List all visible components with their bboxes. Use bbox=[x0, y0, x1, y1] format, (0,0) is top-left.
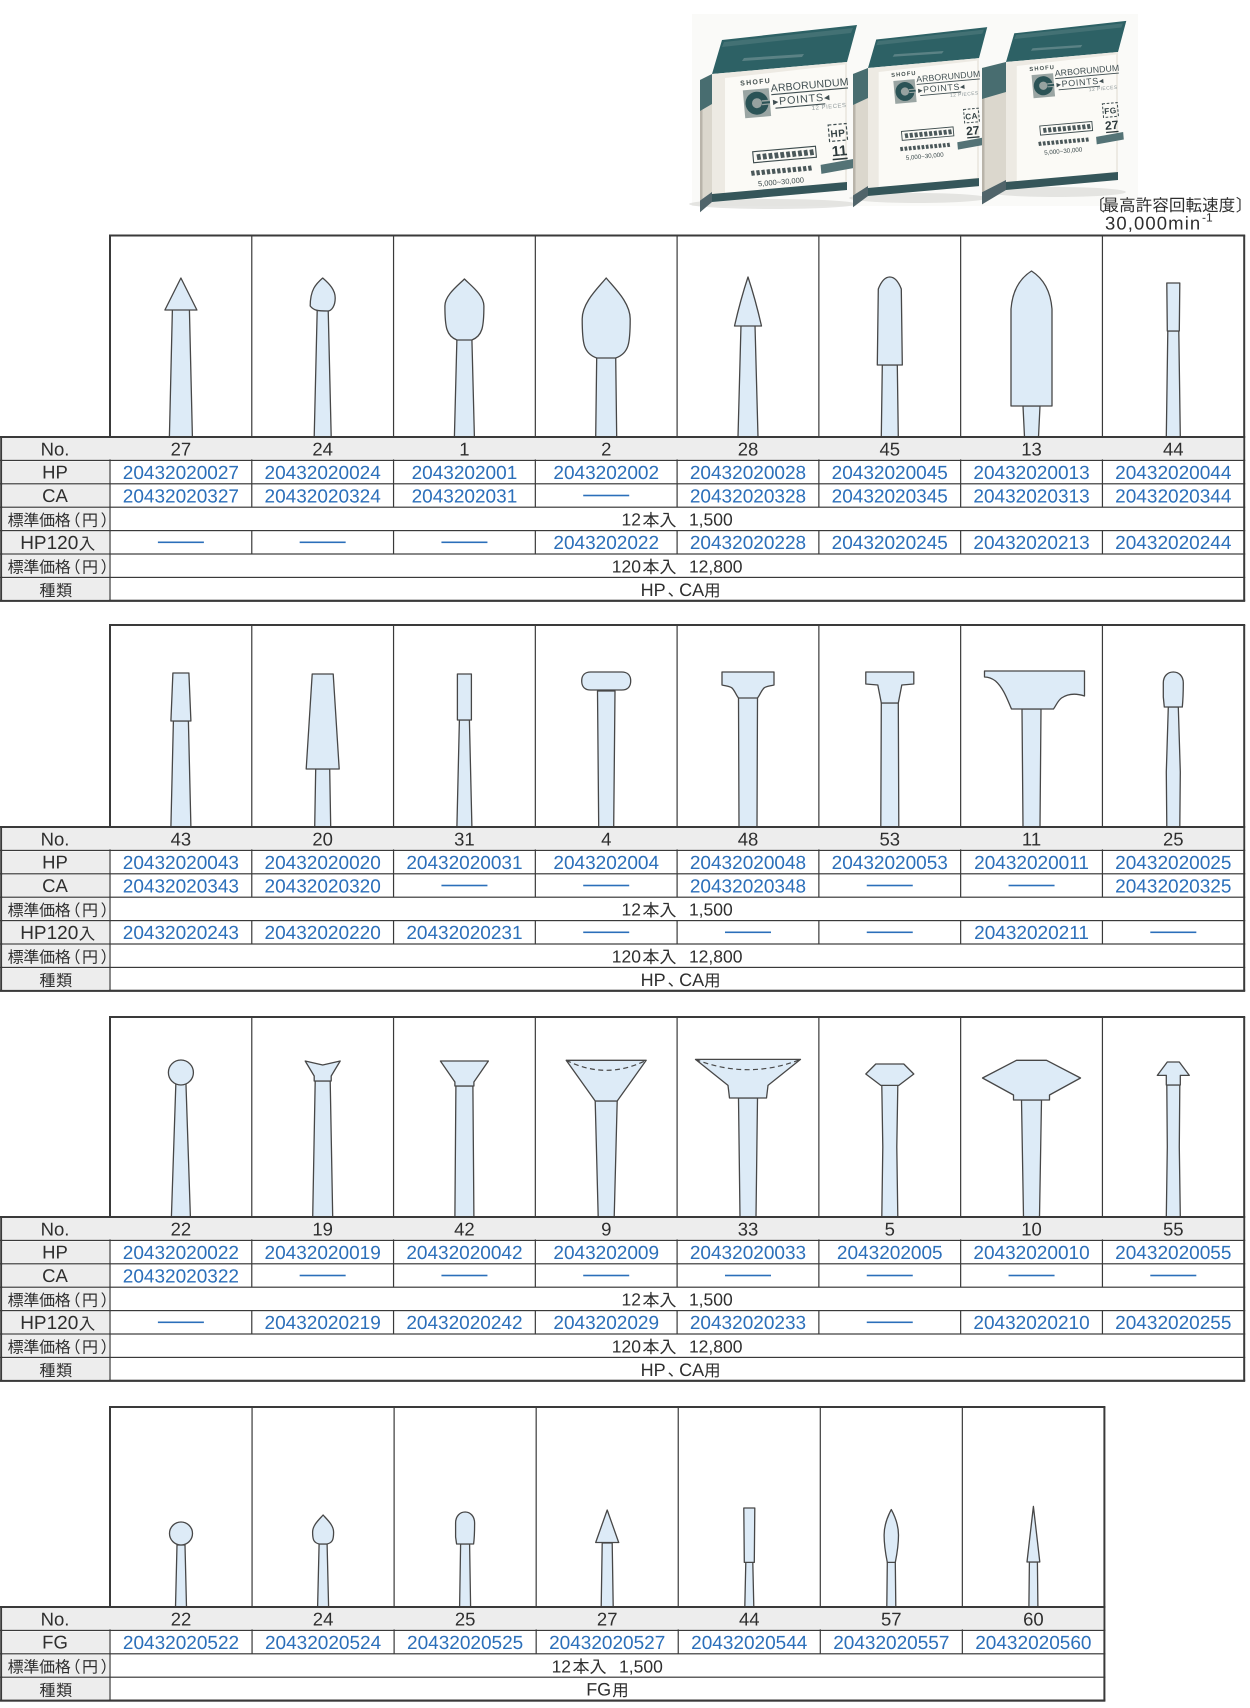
svg-text:20432020053: 20432020053 bbox=[832, 853, 948, 874]
svg-text:27: 27 bbox=[597, 1608, 618, 1629]
svg-text:CA: CA bbox=[679, 580, 704, 600]
svg-text:20432020028: 20432020028 bbox=[690, 463, 806, 484]
svg-text:48: 48 bbox=[738, 828, 759, 849]
svg-text:20432020313: 20432020313 bbox=[973, 486, 1089, 507]
svg-text:HP: HP bbox=[42, 462, 68, 483]
svg-text:22: 22 bbox=[171, 1218, 192, 1239]
svg-text:20432020527: 20432020527 bbox=[549, 1633, 665, 1654]
svg-text:CA: CA bbox=[42, 1265, 68, 1286]
svg-text:20432020522: 20432020522 bbox=[123, 1633, 239, 1654]
svg-text:42: 42 bbox=[454, 1218, 475, 1239]
svg-text:20432020010: 20432020010 bbox=[973, 1243, 1089, 1264]
svg-text:19: 19 bbox=[312, 1218, 333, 1239]
svg-text:30,000min: 30,000min bbox=[1105, 213, 1201, 234]
svg-text:20432020019: 20432020019 bbox=[265, 1243, 381, 1264]
svg-text:5: 5 bbox=[885, 1218, 895, 1239]
svg-text:No.: No. bbox=[41, 1218, 70, 1239]
svg-text:20432020348: 20432020348 bbox=[690, 876, 806, 897]
svg-text:120: 120 bbox=[612, 947, 641, 967]
svg-text:20432020255: 20432020255 bbox=[1115, 1313, 1231, 1334]
svg-text:20432020245: 20432020245 bbox=[832, 533, 948, 554]
svg-text:20432020345: 20432020345 bbox=[832, 486, 948, 507]
svg-text:FG: FG bbox=[1104, 106, 1117, 116]
svg-text:HP: HP bbox=[42, 852, 68, 873]
svg-text:2: 2 bbox=[601, 438, 611, 459]
svg-text:FG: FG bbox=[586, 1680, 611, 1700]
svg-text:HP: HP bbox=[830, 128, 846, 140]
svg-text:HP: HP bbox=[641, 580, 666, 600]
svg-text:44: 44 bbox=[1163, 438, 1184, 459]
svg-text:2043202029: 2043202029 bbox=[553, 1313, 659, 1334]
svg-text:60: 60 bbox=[1023, 1608, 1044, 1629]
svg-text:12,800: 12,800 bbox=[689, 557, 743, 577]
svg-text:20432020544: 20432020544 bbox=[691, 1633, 808, 1654]
svg-text:2043202001: 2043202001 bbox=[412, 463, 518, 484]
svg-text:20432020025: 20432020025 bbox=[1115, 853, 1231, 874]
svg-text:20432020324: 20432020324 bbox=[265, 486, 382, 507]
svg-text:HP: HP bbox=[641, 1360, 666, 1380]
svg-text:12: 12 bbox=[621, 900, 640, 920]
svg-text:20: 20 bbox=[312, 828, 333, 849]
svg-text:120: 120 bbox=[612, 557, 641, 577]
svg-text:20432020233: 20432020233 bbox=[690, 1313, 806, 1334]
svg-text:20432020045: 20432020045 bbox=[832, 463, 948, 484]
svg-text:20432020213: 20432020213 bbox=[973, 533, 1089, 554]
svg-text:20432020525: 20432020525 bbox=[407, 1633, 523, 1654]
svg-text:20432020320: 20432020320 bbox=[265, 876, 381, 897]
svg-text:55: 55 bbox=[1163, 1218, 1184, 1239]
svg-text:HP120: HP120 bbox=[20, 533, 78, 554]
svg-text:12: 12 bbox=[621, 1290, 640, 1310]
svg-text:28: 28 bbox=[738, 438, 759, 459]
svg-text:20432020228: 20432020228 bbox=[690, 533, 806, 554]
svg-text:45: 45 bbox=[879, 438, 900, 459]
svg-text:13: 13 bbox=[1021, 438, 1042, 459]
svg-text:20432020043: 20432020043 bbox=[123, 853, 239, 874]
svg-text:CA: CA bbox=[679, 970, 704, 990]
svg-text:2043202005: 2043202005 bbox=[837, 1243, 943, 1264]
svg-text:20432020560: 20432020560 bbox=[975, 1633, 1091, 1654]
svg-text:20432020244: 20432020244 bbox=[1115, 533, 1232, 554]
svg-text:120: 120 bbox=[612, 1337, 641, 1357]
svg-text:HP120: HP120 bbox=[20, 1313, 78, 1334]
svg-text:31: 31 bbox=[454, 828, 475, 849]
svg-text:20432020231: 20432020231 bbox=[406, 923, 522, 944]
svg-text:2043202009: 2043202009 bbox=[553, 1243, 659, 1264]
svg-text:1,500: 1,500 bbox=[619, 1656, 663, 1676]
svg-text:44: 44 bbox=[739, 1608, 760, 1629]
svg-text:20432020022: 20432020022 bbox=[123, 1243, 239, 1264]
svg-text:20432020211: 20432020211 bbox=[974, 923, 1089, 944]
svg-text:12,800: 12,800 bbox=[689, 1337, 743, 1357]
svg-text:CA: CA bbox=[965, 112, 978, 122]
svg-text:1: 1 bbox=[459, 438, 469, 459]
svg-text:20432020024: 20432020024 bbox=[265, 463, 382, 484]
svg-text:12,800: 12,800 bbox=[689, 947, 743, 967]
svg-text:53: 53 bbox=[879, 828, 900, 849]
svg-text:2043202004: 2043202004 bbox=[553, 853, 659, 874]
svg-text:33: 33 bbox=[738, 1218, 759, 1239]
svg-text:20432020524: 20432020524 bbox=[265, 1633, 382, 1654]
svg-text:10: 10 bbox=[1021, 1218, 1042, 1239]
svg-text:1,500: 1,500 bbox=[689, 510, 733, 530]
svg-text:20432020344: 20432020344 bbox=[1115, 486, 1232, 507]
svg-text:20432020327: 20432020327 bbox=[123, 486, 239, 507]
svg-text:4: 4 bbox=[601, 828, 611, 849]
svg-text:20432020013: 20432020013 bbox=[973, 463, 1089, 484]
svg-text:24: 24 bbox=[313, 1608, 334, 1629]
svg-text:22: 22 bbox=[171, 1608, 192, 1629]
svg-text:No.: No. bbox=[41, 1608, 70, 1629]
svg-text:1,500: 1,500 bbox=[689, 900, 733, 920]
svg-text:20432020011: 20432020011 bbox=[974, 853, 1089, 874]
svg-text:HP: HP bbox=[42, 1242, 68, 1263]
svg-text:9: 9 bbox=[601, 1218, 611, 1239]
svg-text:20432020242: 20432020242 bbox=[406, 1313, 522, 1334]
svg-text:20432020027: 20432020027 bbox=[123, 463, 239, 484]
svg-text:No.: No. bbox=[41, 438, 70, 459]
svg-text:11: 11 bbox=[1022, 828, 1041, 849]
svg-text:20432020042: 20432020042 bbox=[406, 1243, 522, 1264]
svg-text:20432020557: 20432020557 bbox=[833, 1633, 949, 1654]
svg-text:20432020020: 20432020020 bbox=[265, 853, 381, 874]
svg-text:No.: No. bbox=[41, 828, 70, 849]
svg-text:12: 12 bbox=[552, 1656, 571, 1676]
svg-text:12: 12 bbox=[621, 510, 640, 530]
svg-text:-1: -1 bbox=[1202, 211, 1213, 225]
svg-text:20432020343: 20432020343 bbox=[123, 876, 239, 897]
svg-text:CA: CA bbox=[42, 485, 68, 506]
svg-text:20432020210: 20432020210 bbox=[973, 1313, 1089, 1334]
svg-text:20432020220: 20432020220 bbox=[265, 923, 381, 944]
svg-text:2043202022: 2043202022 bbox=[553, 533, 659, 554]
svg-text:20432020328: 20432020328 bbox=[690, 486, 806, 507]
svg-text:20432020325: 20432020325 bbox=[1115, 876, 1231, 897]
svg-text:20432020031: 20432020031 bbox=[406, 853, 522, 874]
svg-text:2043202031: 2043202031 bbox=[412, 486, 518, 507]
svg-text:43: 43 bbox=[171, 828, 192, 849]
svg-text:FG: FG bbox=[42, 1632, 68, 1653]
svg-text:HP: HP bbox=[641, 970, 666, 990]
svg-text:57: 57 bbox=[881, 1608, 902, 1629]
svg-text:20432020322: 20432020322 bbox=[123, 1266, 239, 1287]
svg-text:20432020243: 20432020243 bbox=[123, 923, 239, 944]
svg-text:HP120: HP120 bbox=[20, 923, 78, 944]
svg-text:CA: CA bbox=[679, 1360, 704, 1380]
svg-text:25: 25 bbox=[455, 1608, 476, 1629]
svg-text:25: 25 bbox=[1163, 828, 1184, 849]
svg-text:20432020033: 20432020033 bbox=[690, 1243, 806, 1264]
svg-text:20432020219: 20432020219 bbox=[265, 1313, 381, 1334]
svg-text:1,500: 1,500 bbox=[689, 1290, 733, 1310]
svg-text:27: 27 bbox=[171, 438, 192, 459]
svg-text:20432020048: 20432020048 bbox=[690, 853, 806, 874]
svg-text:20432020055: 20432020055 bbox=[1115, 1243, 1231, 1264]
svg-text:24: 24 bbox=[312, 438, 333, 459]
svg-text:CA: CA bbox=[42, 875, 68, 896]
svg-text:20432020044: 20432020044 bbox=[1115, 463, 1232, 484]
svg-text:2043202002: 2043202002 bbox=[553, 463, 659, 484]
